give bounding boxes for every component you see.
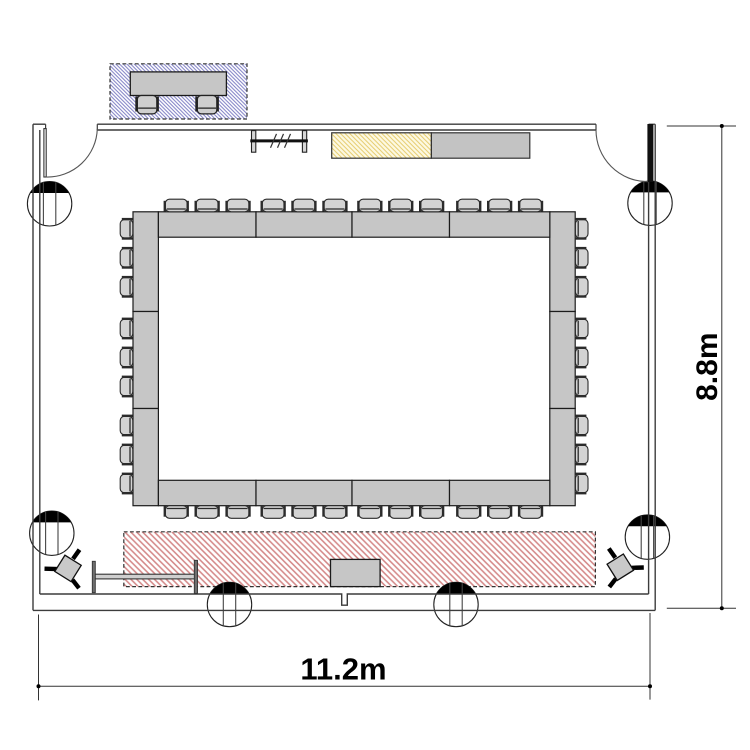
svg-text:11.2m: 11.2m <box>300 652 386 687</box>
svg-text:8.8m: 8.8m <box>691 333 724 401</box>
